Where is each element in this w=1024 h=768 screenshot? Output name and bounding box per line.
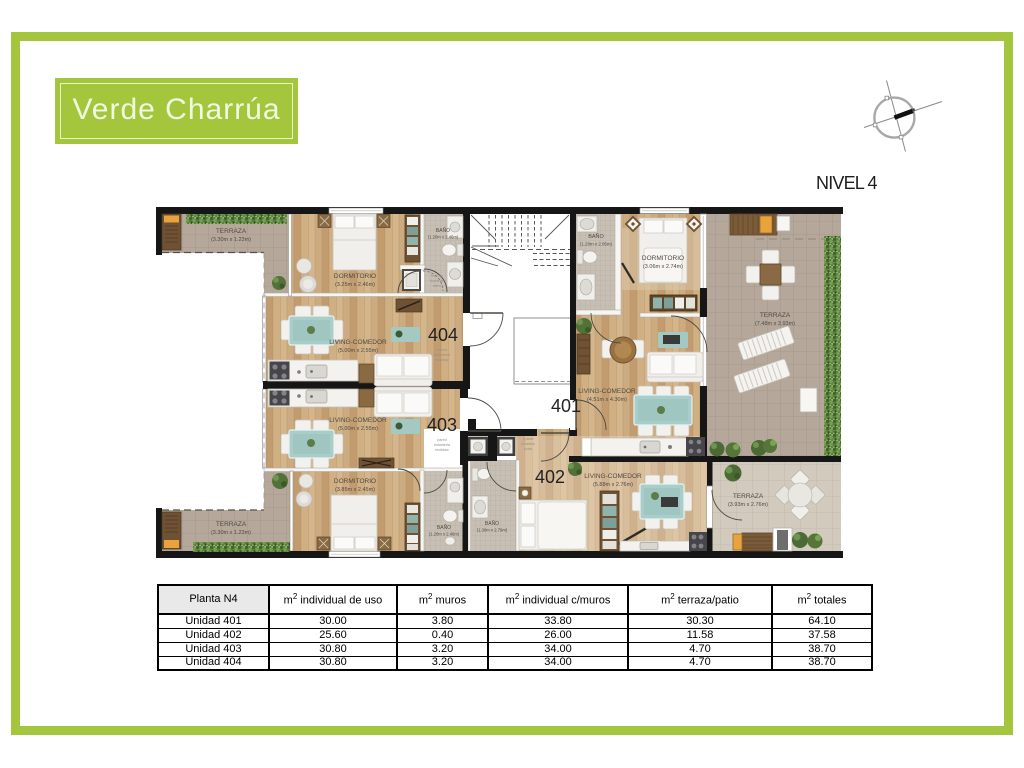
- svg-text:pared: pared: [437, 348, 446, 352]
- svg-text:BAÑO: BAÑO: [588, 233, 604, 240]
- svg-text:401: 401: [551, 396, 581, 416]
- svg-text:BAÑO: BAÑO: [437, 524, 451, 531]
- svg-text:(3.06m x 2.74m): (3.06m x 2.74m): [643, 264, 683, 270]
- svg-text:TERRAZA: TERRAZA: [216, 228, 247, 235]
- svg-text:402: 402: [535, 467, 565, 487]
- svg-text:(3.85m x 2.45m): (3.85m x 2.45m): [335, 487, 375, 493]
- svg-text:corta: corta: [524, 447, 532, 451]
- svg-text:levadiza: levadiza: [521, 442, 534, 446]
- svg-text:LIVING-COMEDOR: LIVING-COMEDOR: [578, 388, 636, 395]
- svg-text:DORMITORIO: DORMITORIO: [334, 273, 376, 280]
- svg-text:(3.93m x 2.76m): (3.93m x 2.76m): [728, 502, 768, 508]
- svg-text:estanteria: estanteria: [434, 443, 450, 447]
- svg-text:(5.88m x 2.76m): (5.88m x 2.76m): [593, 482, 633, 488]
- svg-text:404: 404: [428, 325, 458, 345]
- svg-text:ducha de: ducha de: [430, 279, 445, 283]
- svg-text:BAÑO: BAÑO: [436, 227, 450, 234]
- svg-text:(5.00m x 2.55m): (5.00m x 2.55m): [338, 348, 378, 354]
- svg-text:estanteria: estanteria: [434, 353, 450, 357]
- svg-text:(3.25m x 2.46m): (3.25m x 2.46m): [335, 282, 375, 288]
- svg-text:pared: pared: [437, 438, 446, 442]
- svg-text:p.seal: p.seal: [523, 437, 533, 441]
- svg-text:(7.48m x 3.93m): (7.48m x 3.93m): [755, 321, 795, 327]
- svg-text:(4.51m x 4.30m): (4.51m x 4.30m): [587, 397, 627, 403]
- svg-text:TERRAZA: TERRAZA: [733, 493, 764, 500]
- svg-text:(1.20m x 2.46m): (1.20m x 2.46m): [429, 532, 460, 537]
- svg-text:(1.20m x 2.05m): (1.20m x 2.05m): [580, 242, 613, 247]
- svg-text:TERRAZA: TERRAZA: [216, 521, 247, 528]
- svg-text:(3.30m x 1.23m): (3.30m x 1.23m): [211, 237, 251, 243]
- svg-text:(5.00m x 2.55m): (5.00m x 2.55m): [338, 426, 378, 432]
- svg-text:LIVING-COMEDOR: LIVING-COMEDOR: [584, 473, 642, 480]
- svg-text:403: 403: [427, 415, 457, 435]
- svg-text:DORMITORIO: DORMITORIO: [642, 255, 684, 262]
- svg-text:DORMITORIO: DORMITORIO: [334, 478, 376, 485]
- svg-text:Box de: Box de: [431, 274, 442, 278]
- svg-text:LIVING-COMEDOR: LIVING-COMEDOR: [329, 339, 387, 346]
- svg-text:(3.30m x 1.23m): (3.30m x 1.23m): [211, 530, 251, 536]
- svg-text:recibidor: recibidor: [435, 448, 450, 452]
- svg-text:(1.20m x 2.46m): (1.20m x 2.46m): [428, 235, 459, 240]
- svg-text:TERRAZA: TERRAZA: [760, 312, 791, 319]
- svg-text:recibidor: recibidor: [435, 358, 450, 362]
- svg-text:LIVING-COMEDOR: LIVING-COMEDOR: [329, 417, 387, 424]
- svg-text:(1.30m x 2.79m): (1.30m x 2.79m): [477, 528, 508, 533]
- svg-text:BAÑO: BAÑO: [485, 520, 499, 527]
- svg-text:vidrio: vidrio: [433, 284, 442, 288]
